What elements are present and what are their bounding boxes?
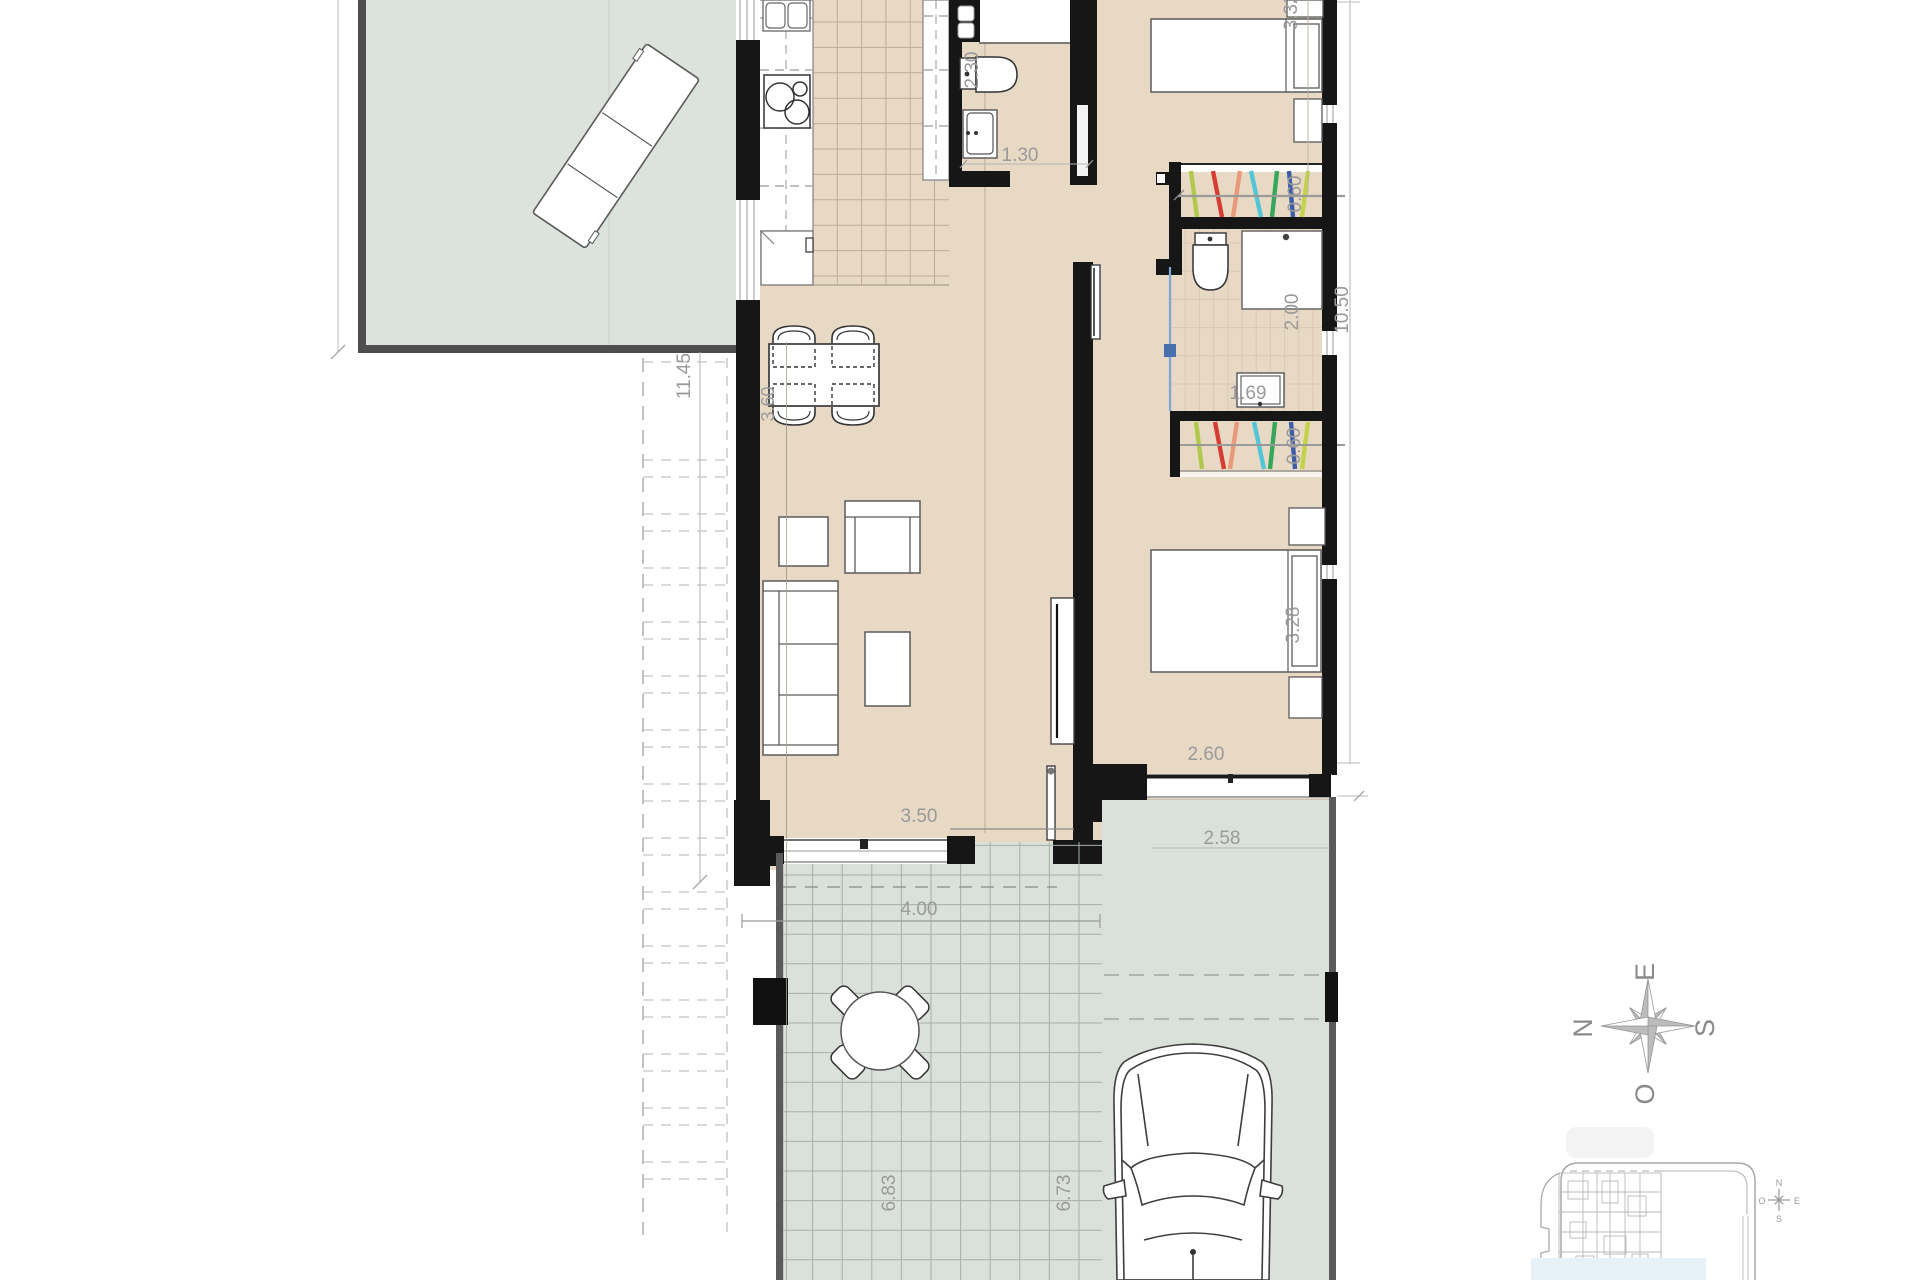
- svg-text:E: E: [1794, 1196, 1800, 1206]
- svg-text:O: O: [1630, 1083, 1660, 1104]
- svg-text:3.32: 3.32: [1281, 0, 1302, 30]
- svg-text:6.73: 6.73: [1054, 1175, 1075, 1212]
- svg-text:6.83: 6.83: [879, 1175, 900, 1212]
- svg-text:2.58: 2.58: [1204, 828, 1241, 849]
- svg-text:S: S: [1776, 1214, 1782, 1224]
- svg-text:S: S: [1690, 1019, 1720, 1037]
- svg-text:N: N: [1568, 1018, 1598, 1038]
- svg-text:2.60: 2.60: [1188, 744, 1225, 765]
- svg-text:1.69: 1.69: [1230, 383, 1267, 404]
- svg-text:10.50: 10.50: [1332, 286, 1353, 334]
- svg-text:0.60: 0.60: [1285, 176, 1306, 213]
- svg-text:3.50: 3.50: [901, 806, 938, 827]
- svg-text:2.00: 2.00: [1282, 294, 1303, 331]
- svg-text:4.00: 4.00: [901, 899, 938, 920]
- svg-text:O: O: [1758, 1196, 1765, 1206]
- svg-text:N: N: [1776, 1178, 1783, 1188]
- svg-text:E: E: [1630, 963, 1660, 981]
- svg-text:3.60: 3.60: [758, 386, 778, 421]
- svg-text:2.30: 2.30: [962, 52, 983, 89]
- svg-text:1.30: 1.30: [1002, 145, 1039, 166]
- svg-text:3.28: 3.28: [1283, 607, 1304, 644]
- svg-text:11.45: 11.45: [674, 353, 695, 399]
- svg-text:0.60: 0.60: [1284, 428, 1305, 465]
